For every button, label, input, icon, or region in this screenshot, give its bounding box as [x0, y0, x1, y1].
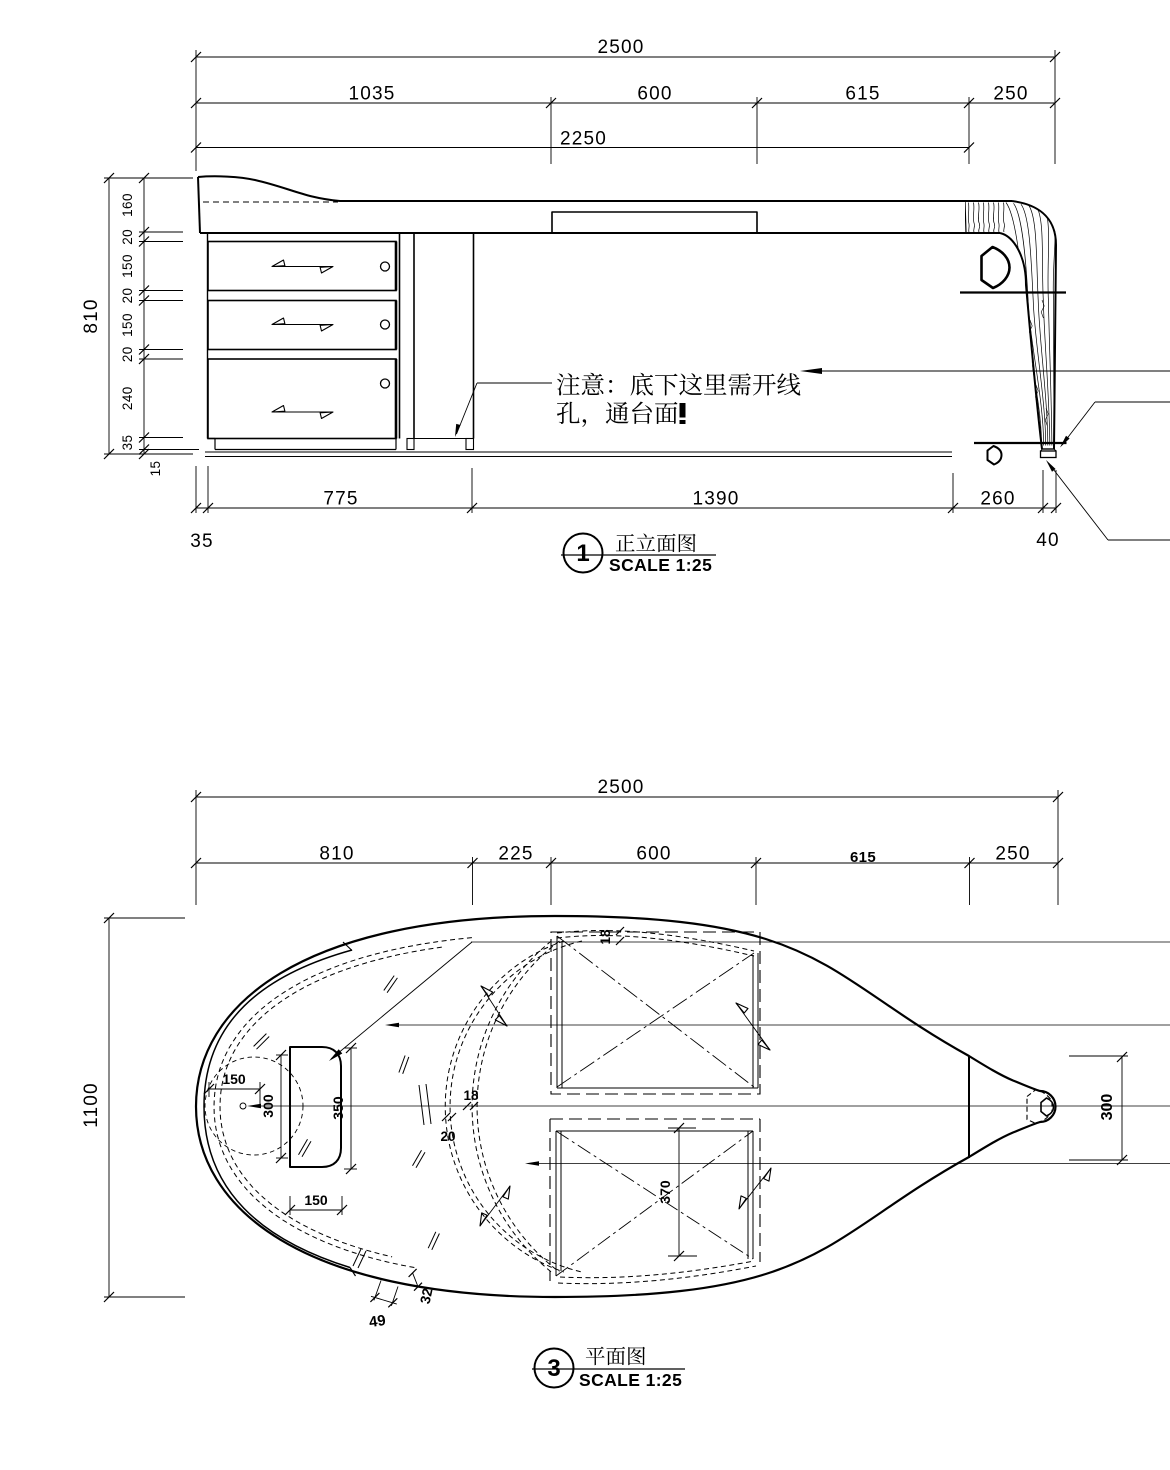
svg-text:49: 49 [368, 1312, 387, 1331]
svg-text:18: 18 [463, 1088, 479, 1103]
svg-text:SCALE 1:25: SCALE 1:25 [609, 555, 712, 575]
svg-text:615: 615 [850, 849, 876, 866]
svg-text:1100: 1100 [81, 1082, 102, 1128]
svg-text:370: 370 [657, 1180, 673, 1204]
svg-text:35: 35 [190, 531, 214, 552]
svg-text:615: 615 [845, 84, 880, 105]
svg-text:1035: 1035 [348, 84, 395, 105]
svg-text:2250: 2250 [560, 129, 607, 150]
svg-text:810: 810 [81, 298, 102, 333]
svg-text:160: 160 [120, 193, 135, 217]
svg-text:20: 20 [120, 288, 135, 304]
svg-text:600: 600 [636, 844, 671, 865]
svg-text:18: 18 [598, 929, 613, 945]
svg-text:150: 150 [120, 254, 135, 278]
svg-text:150: 150 [304, 1192, 328, 1208]
svg-text:40: 40 [1036, 530, 1060, 551]
svg-text:775: 775 [323, 489, 358, 510]
svg-text:1390: 1390 [692, 489, 739, 510]
svg-text:250: 250 [993, 84, 1028, 105]
svg-text:SCALE 1:25: SCALE 1:25 [579, 1370, 682, 1390]
svg-text:150: 150 [120, 313, 135, 337]
svg-text:20: 20 [120, 229, 135, 245]
svg-text:150: 150 [222, 1071, 246, 1087]
svg-text:15: 15 [148, 461, 163, 477]
svg-text:20: 20 [440, 1129, 455, 1144]
svg-text:300: 300 [260, 1094, 276, 1118]
svg-text:225: 225 [498, 844, 533, 865]
svg-text:240: 240 [120, 386, 135, 410]
svg-text:35: 35 [120, 435, 135, 451]
svg-text:810: 810 [319, 844, 354, 865]
svg-text:600: 600 [637, 84, 672, 105]
svg-text:2500: 2500 [597, 777, 644, 798]
svg-text:250: 250 [995, 844, 1030, 865]
svg-text:20: 20 [120, 346, 135, 362]
svg-text:300: 300 [1099, 1094, 1116, 1121]
svg-text:260: 260 [980, 489, 1015, 510]
svg-text:350: 350 [330, 1096, 346, 1120]
svg-text:1: 1 [576, 540, 589, 567]
svg-text:2500: 2500 [597, 37, 644, 58]
